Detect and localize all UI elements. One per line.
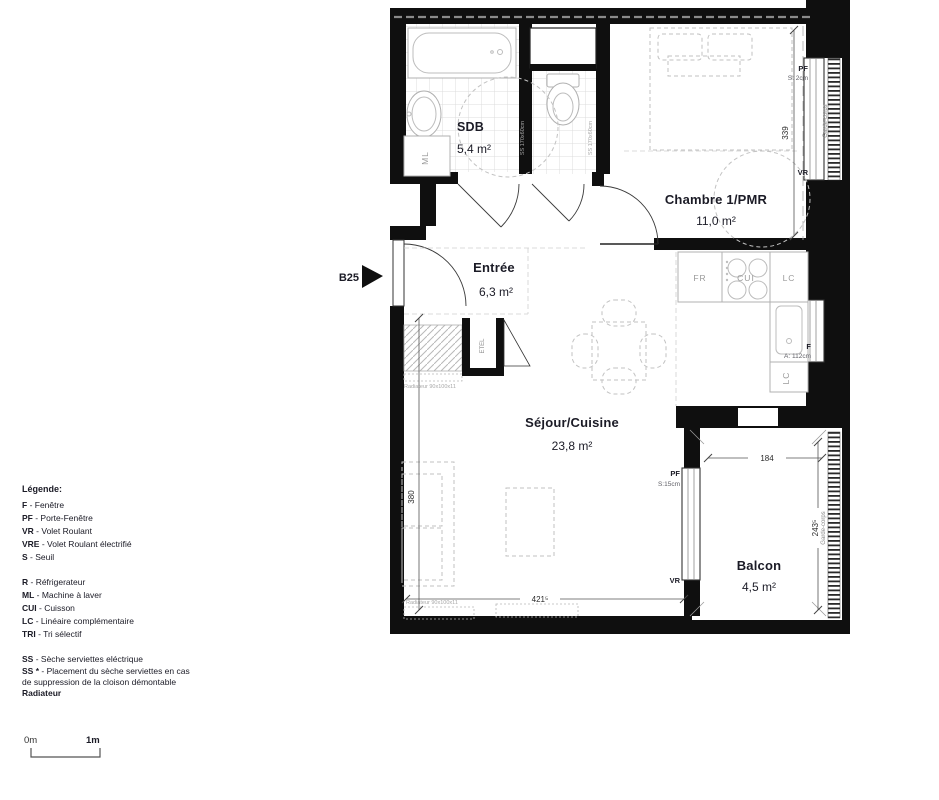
garde-corps-balcon-label: Garde-corps — [821, 511, 827, 544]
washing-machine-label: ML — [420, 151, 430, 165]
legend-item: F - Fenêtre — [22, 499, 194, 512]
vr-chambre-label: VR — [798, 168, 809, 177]
unit-number: B25 — [339, 272, 359, 284]
lc-counter-label: LC — [783, 273, 796, 283]
room-area-sdb: 5,4 m² — [457, 142, 491, 156]
radiator-entree: Radiateur 90x100x11 — [404, 325, 462, 390]
legend-item: CUI - Cuisson — [22, 602, 194, 615]
legend-footer: Radiateur — [22, 688, 194, 699]
legend-title: Légende: — [22, 484, 194, 494]
toilet-icon — [547, 74, 579, 125]
sofa-icon — [402, 462, 454, 586]
room-area-balcon: 4,5 m² — [742, 580, 776, 594]
guardrail-chambre — [828, 58, 840, 180]
bathtub-icon — [408, 28, 516, 78]
dim-chambre-339: 339 — [781, 26, 798, 240]
seuil-chambre-label: S: 2cm — [788, 75, 808, 82]
allege-kitchen-label: A: 112cm — [784, 353, 811, 360]
legend: Légende: F - Fenêtre PF - Porte-Fenêtre … — [22, 484, 194, 699]
sill-marking — [496, 604, 578, 617]
radiator-sejour-label: Radiateur 90x100x11 — [406, 600, 458, 606]
svg-text:243⁵: 243⁵ — [811, 520, 820, 537]
legend-item: VRE - Volet Roulant électrifié — [22, 538, 194, 551]
bed — [650, 28, 792, 150]
guardrail-balcony — [828, 432, 840, 618]
washbasin-icon — [407, 91, 441, 137]
room-name-entree: Entrée — [473, 260, 515, 275]
scale-start: 0m — [24, 735, 37, 746]
seuil-balcon-label: S:15cm — [658, 481, 680, 488]
washing-machine-icon: ML — [404, 136, 450, 176]
etel-label: ETEL — [480, 338, 486, 354]
svg-text:421⁵: 421⁵ — [532, 595, 549, 604]
svg-text:380: 380 — [407, 490, 416, 504]
room-name-sdb: SDB — [457, 120, 484, 134]
room-name-balcon: Balcon — [737, 558, 782, 573]
svg-text:184: 184 — [760, 454, 774, 463]
balcony-door-window — [682, 468, 700, 580]
legend-item: LC - Linéaire complémentaire — [22, 615, 194, 628]
coffee-table-icon — [506, 488, 554, 556]
kitchen: FR CUI LC LC — [676, 252, 808, 406]
unit-marker: B25 — [339, 265, 383, 288]
scale-bar: 0m 1m — [24, 735, 100, 757]
legend-note: SS * - Placement du sèche serviettes en … — [22, 666, 194, 688]
etel-closet: ETEL — [462, 318, 530, 376]
dim-balcon-184: 184 — [704, 454, 826, 463]
radiator-entree-label: Radiateur 90x100x11 — [404, 384, 456, 390]
vr-balcon-label: VR — [670, 576, 681, 585]
towel-dryer-label-sdb: SS 170x60cm — [520, 120, 526, 155]
room-name-chambre: Chambre 1/PMR — [665, 192, 768, 207]
legend-item: VR - Volet Roulant — [22, 525, 194, 538]
fridge-label: FR — [693, 273, 706, 283]
room-area-entree: 6,3 m² — [479, 285, 513, 299]
floorplan-page: ML SS 170x60cm SS 170x60cm — [0, 0, 939, 800]
legend-item: S - Seuil — [22, 551, 194, 564]
wc-duct — [530, 28, 596, 71]
room-name-sejour: Séjour/Cuisine — [525, 415, 619, 430]
closet-door — [504, 320, 530, 366]
pillow — [658, 34, 702, 60]
cooktop-label: CUI — [737, 273, 755, 283]
bathroom: ML SS 170x60cm SS 170x60cm — [404, 24, 596, 177]
pf-balcon-label: PF — [670, 469, 680, 478]
window-kitchen-label: F — [806, 342, 811, 351]
pillow — [708, 34, 752, 60]
legend-item: R - Réfrigerateur — [22, 576, 194, 589]
legend-item: TRI - Tri sélectif — [22, 628, 194, 641]
towel-dryer-label-wc: SS 170x60cm — [588, 120, 594, 155]
pf-chambre-label: PF — [798, 64, 808, 73]
legend-item: ML - Machine à laver — [22, 589, 194, 602]
room-area-chambre: 11,0 m² — [696, 214, 736, 228]
scale-bracket — [31, 748, 100, 757]
sdb-door — [458, 184, 519, 227]
bedroom-door — [600, 186, 658, 244]
room-area-sejour: 23,8 m² — [552, 439, 593, 453]
bed-throw — [668, 56, 740, 76]
wc-door — [532, 184, 584, 221]
legend-item: PF - Porte-Fenêtre — [22, 512, 194, 525]
scale-end: 1m — [86, 735, 100, 746]
lc-side-label: LC — [781, 372, 791, 385]
svg-text:339: 339 — [781, 126, 790, 140]
legend-item: SS - Sèche serviettes eléctrique — [22, 653, 194, 666]
dining-table-icon — [572, 300, 666, 394]
entry-door — [393, 240, 466, 306]
entry-arrow-icon — [362, 265, 383, 288]
garde-corps-chambre-label: Garde-corps — [823, 104, 829, 137]
